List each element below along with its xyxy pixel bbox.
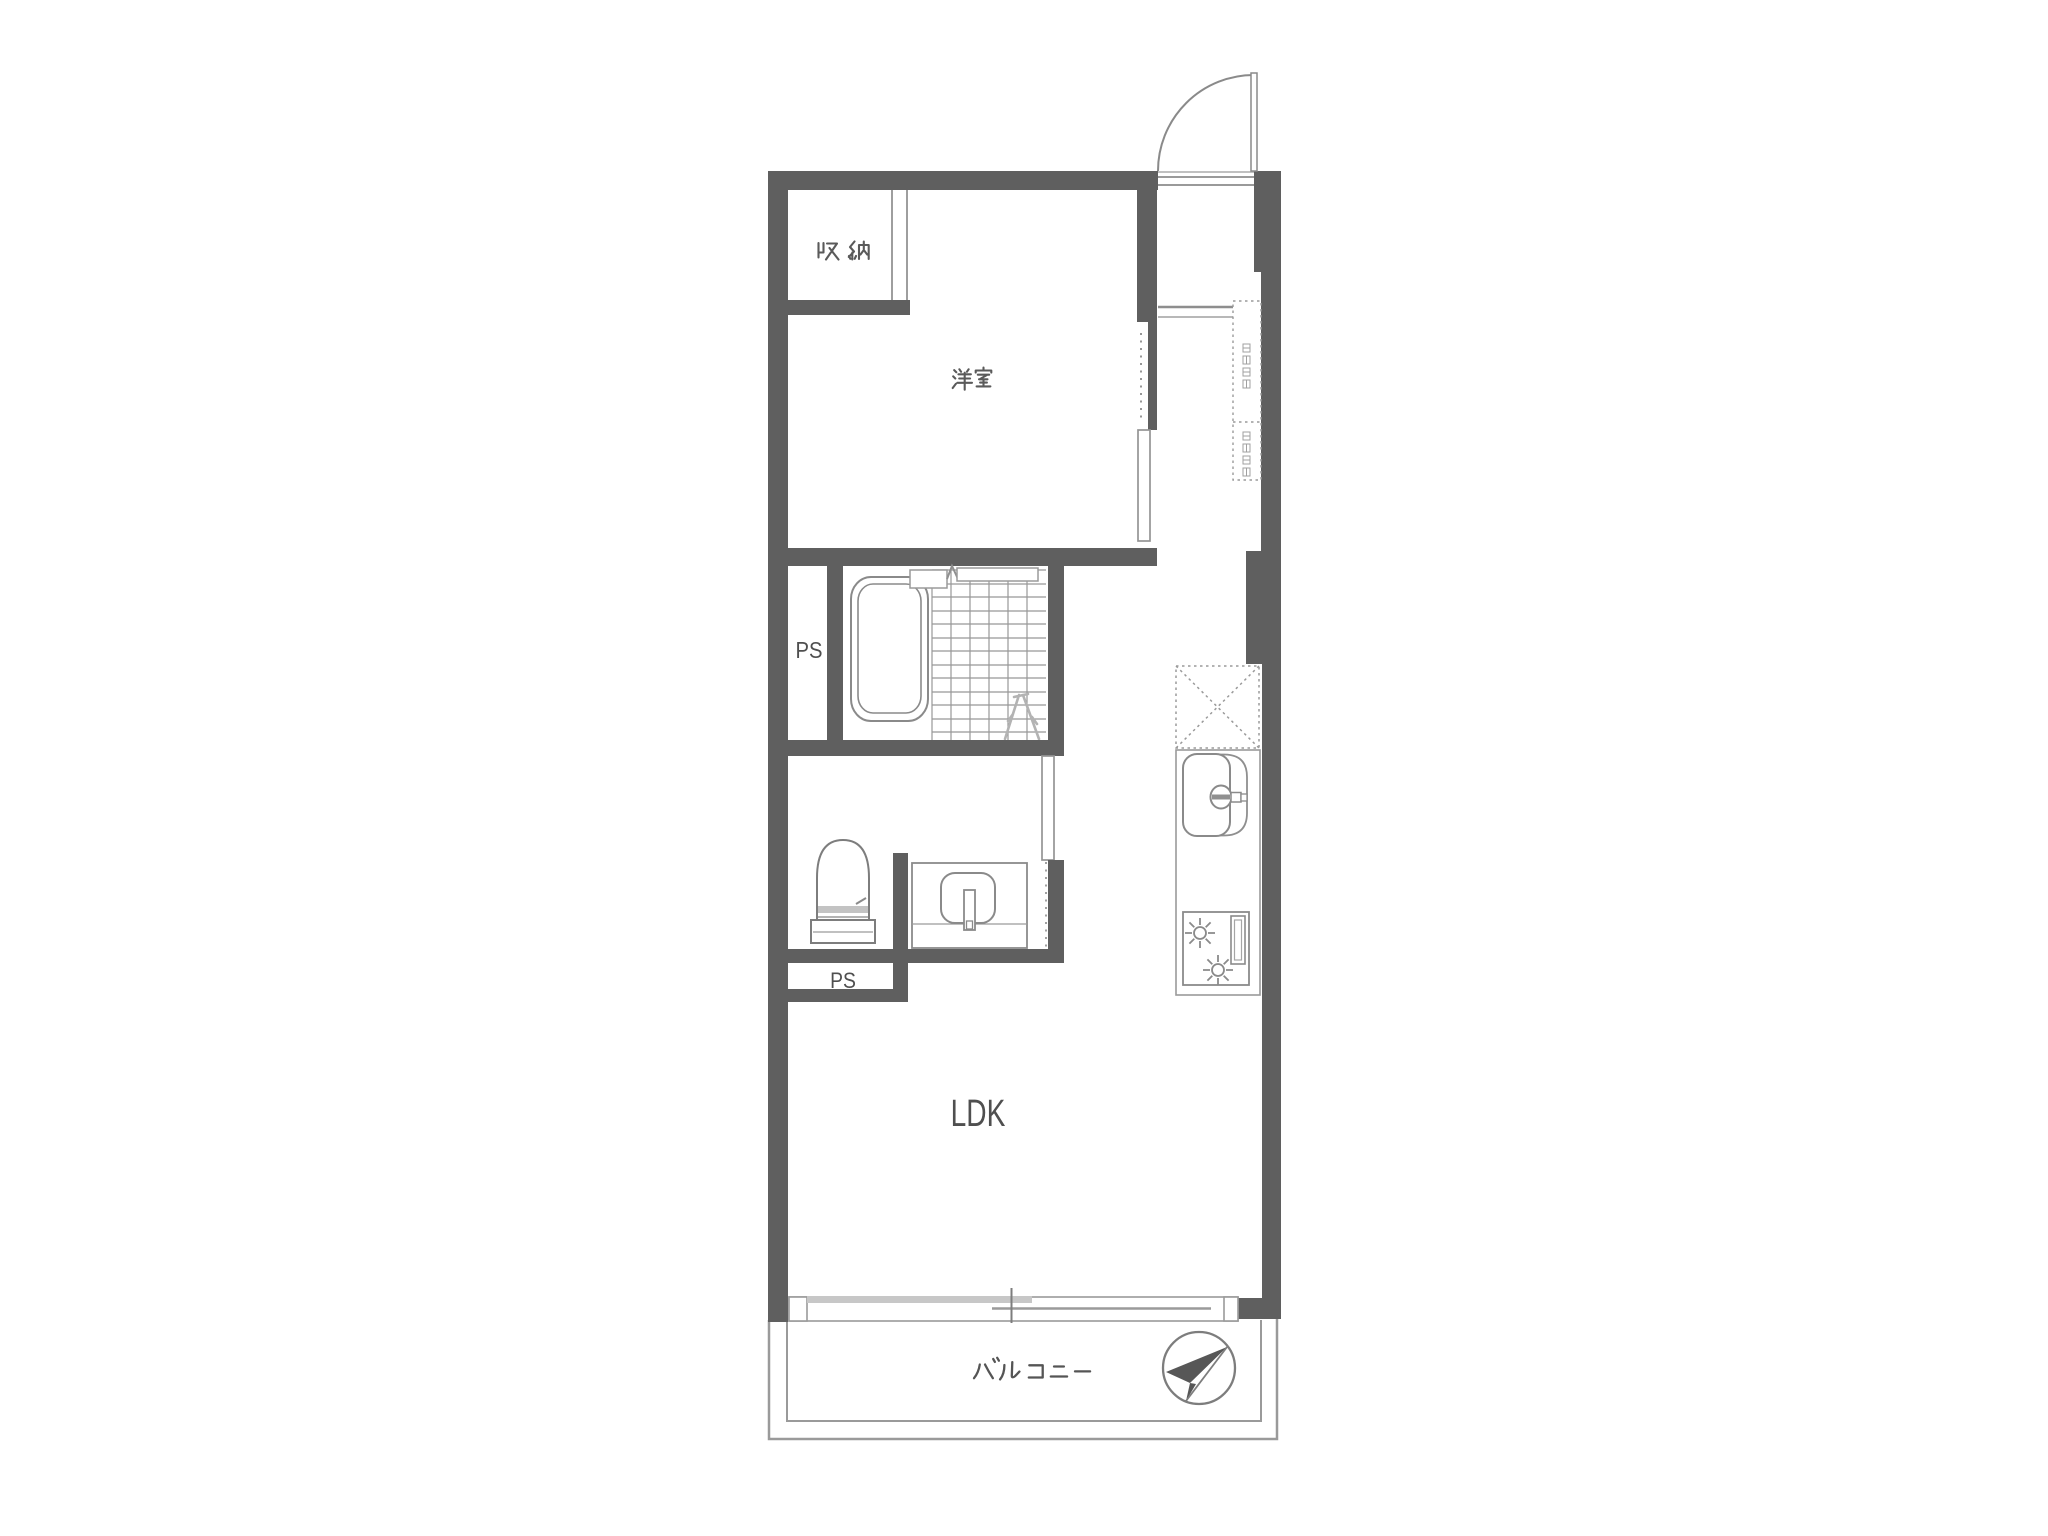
svg-text:PS: PS: [796, 637, 823, 664]
svg-text:LDK: LDK: [951, 1093, 1006, 1135]
svg-text:PS: PS: [830, 969, 856, 993]
